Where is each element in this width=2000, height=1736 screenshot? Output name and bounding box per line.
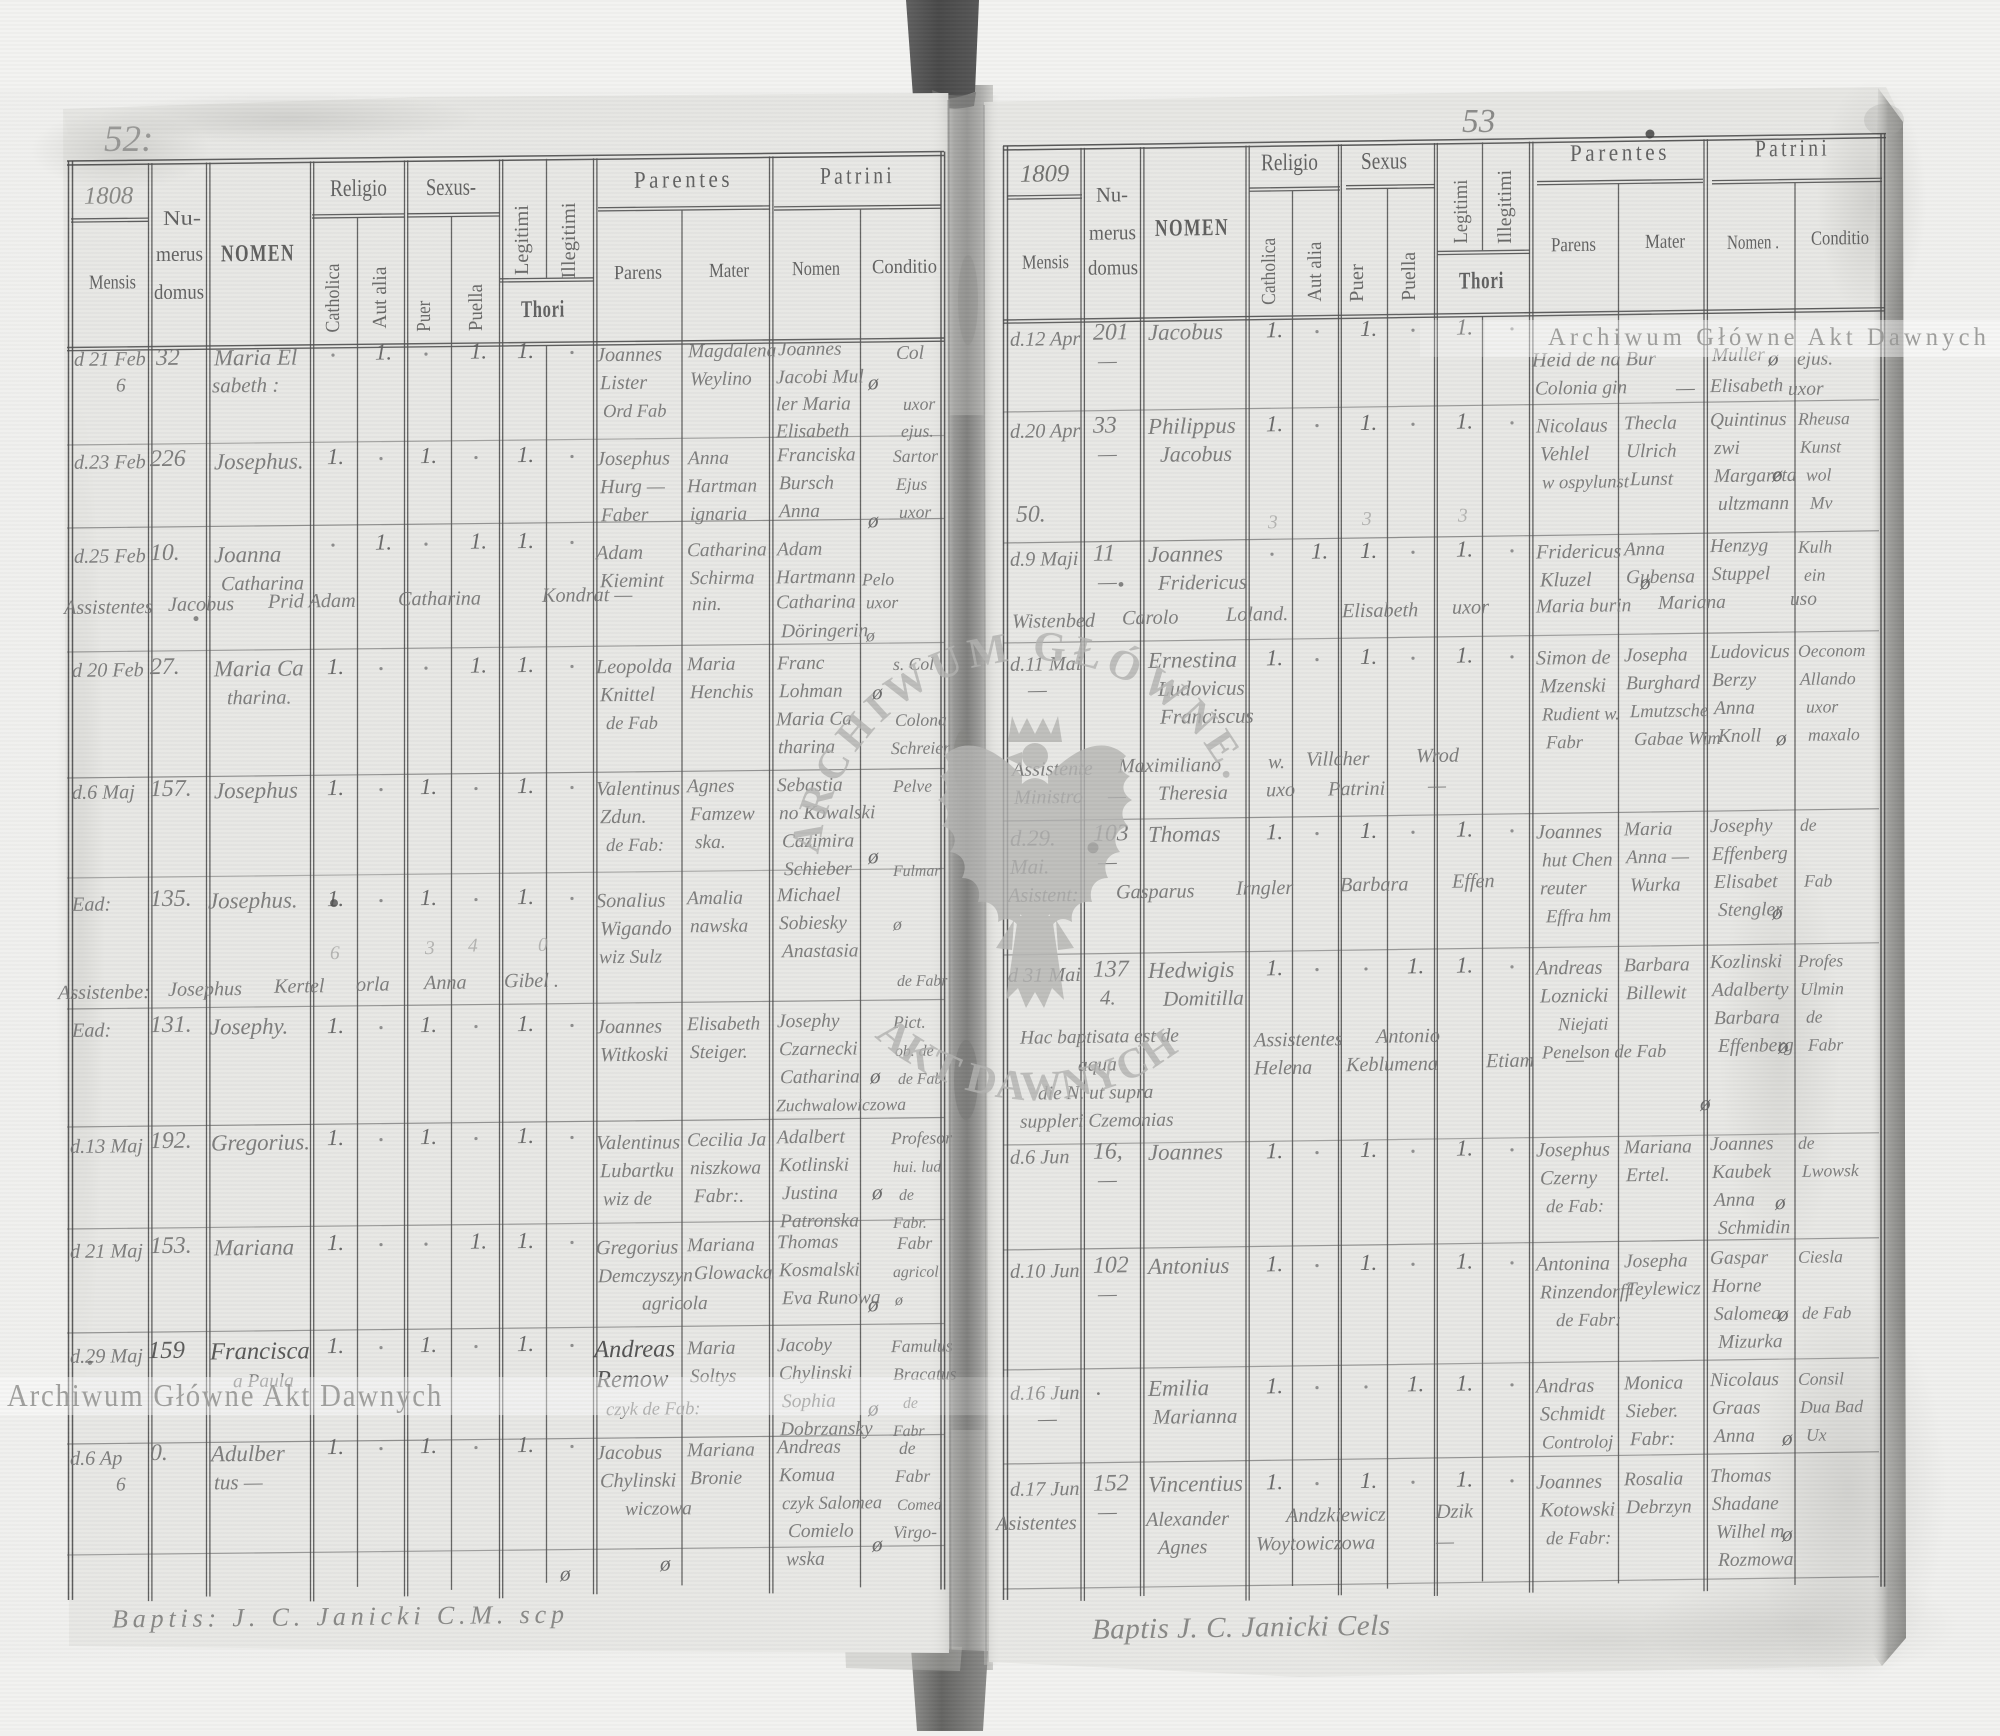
- svg-text:de: de: [899, 1438, 916, 1458]
- svg-text:Comed: Comed: [897, 1497, 942, 1514]
- svg-text:Archiwum Główne Akt Dawnych: Archiwum Główne Akt Dawnych: [1548, 324, 1990, 351]
- svg-text:Patronska: Patronska: [779, 1210, 859, 1232]
- svg-text:1.: 1.: [1311, 538, 1328, 563]
- svg-text:ler Maria: ler Maria: [776, 394, 851, 416]
- svg-text:4.: 4.: [1100, 985, 1116, 1009]
- svg-text:Shadane: Shadane: [1712, 1493, 1779, 1515]
- svg-text:uxor: uxor: [1452, 596, 1489, 619]
- svg-text:ø: ø: [1775, 726, 1787, 750]
- svg-text:ø: ø: [1771, 900, 1783, 924]
- svg-text:Justina: Justina: [782, 1183, 838, 1205]
- svg-text:Barbara: Barbara: [1714, 1007, 1780, 1029]
- svg-text:Simon de: Simon de: [1536, 647, 1611, 670]
- svg-text:Patrini: Patrini: [1327, 778, 1385, 801]
- svg-text:Effra hm: Effra hm: [1545, 907, 1611, 928]
- svg-text:1.: 1.: [517, 773, 534, 798]
- svg-text:Sobiesky: Sobiesky: [779, 913, 847, 935]
- svg-text:Maria: Maria: [1623, 819, 1672, 841]
- svg-text:6: 6: [116, 375, 126, 396]
- svg-text:domus: domus: [154, 280, 204, 305]
- svg-text:d 20 Feb: d 20 Feb: [72, 659, 144, 682]
- svg-text:ø: ø: [871, 1532, 883, 1556]
- svg-text:Lohman: Lohman: [778, 681, 843, 703]
- svg-text:Parens: Parens: [1551, 234, 1596, 257]
- svg-text:Anna: Anna: [686, 448, 729, 469]
- svg-text:ø: ø: [867, 844, 879, 868]
- svg-text:Nicolaus: Nicolaus: [1709, 1369, 1779, 1391]
- svg-text:hui. lud: hui. lud: [893, 1159, 941, 1177]
- svg-text:Ux: Ux: [1806, 1424, 1827, 1444]
- svg-text:Kulh: Kulh: [1797, 536, 1832, 556]
- svg-text:Lwowsk: Lwowsk: [1801, 1160, 1860, 1181]
- svg-text:16,: 16,: [1093, 1138, 1123, 1164]
- svg-text:Maria: Maria: [686, 1338, 735, 1360]
- svg-text:Catharina: Catharina: [776, 591, 856, 613]
- svg-text:Kaubek: Kaubek: [1711, 1161, 1772, 1183]
- svg-text:Religio: Religio: [330, 176, 387, 203]
- svg-text:Antonius: Antonius: [1146, 1253, 1229, 1279]
- svg-text:Fabr: Fabr: [1545, 733, 1584, 754]
- svg-text:ø: ø: [867, 370, 879, 394]
- svg-text:ø: ø: [1781, 1426, 1793, 1450]
- svg-text:Fulmar: Fulmar: [892, 863, 941, 881]
- svg-text:czyk Salomea: czyk Salomea: [782, 1493, 882, 1514]
- svg-text:Effenberg: Effenberg: [1711, 843, 1788, 865]
- svg-text:tharina.: tharina.: [227, 687, 291, 710]
- svg-text:Joannes: Joannes: [1148, 1139, 1223, 1165]
- svg-text:137: 137: [1093, 956, 1130, 983]
- svg-text:Patrini: Patrini: [820, 163, 895, 190]
- svg-text:Wrod: Wrod: [1416, 745, 1460, 768]
- svg-text:Ciesla: Ciesla: [1798, 1246, 1843, 1267]
- svg-text:ska.: ska.: [695, 832, 726, 853]
- svg-text:4: 4: [468, 936, 478, 957]
- svg-text:wska: wska: [786, 1549, 825, 1570]
- svg-text:Michael: Michael: [776, 885, 841, 907]
- svg-text:Hartman: Hartman: [686, 476, 757, 498]
- svg-text:Joannes: Joannes: [596, 344, 662, 367]
- svg-text:Nu-: Nu-: [163, 206, 201, 230]
- svg-text:153.: 153.: [150, 1233, 192, 1259]
- svg-text:Josephus.: Josephus.: [208, 888, 298, 914]
- svg-text:Famulus: Famulus: [890, 1335, 953, 1356]
- svg-text:Villcher: Villcher: [1306, 748, 1370, 771]
- svg-text:—: —: [1097, 348, 1117, 372]
- svg-text:Conditio: Conditio: [1811, 227, 1869, 250]
- svg-text:Salomea: Salomea: [1714, 1303, 1781, 1325]
- svg-text:Colonia gin: Colonia gin: [1535, 377, 1627, 399]
- svg-text:Sonalius: Sonalius: [596, 890, 666, 913]
- svg-text:Lunst: Lunst: [1629, 469, 1674, 491]
- svg-text:de Fabr:: de Fabr:: [1556, 1310, 1621, 1331]
- svg-text:Archiwum Główne Akt Dawnych: Archiwum Główne Akt Dawnych: [7, 1377, 443, 1413]
- svg-text:Effen: Effen: [1451, 870, 1495, 893]
- svg-text:Wurka: Wurka: [1630, 875, 1681, 897]
- svg-text:Ulrich: Ulrich: [1626, 441, 1677, 463]
- svg-text:wol: wol: [1806, 464, 1832, 484]
- svg-text:Penelson de Fab: Penelson de Fab: [1541, 1042, 1666, 1064]
- svg-text:Fabr: Fabr: [1807, 1034, 1843, 1055]
- svg-text:—: —: [1097, 1167, 1117, 1191]
- svg-text:1.: 1.: [470, 1228, 487, 1253]
- svg-text:Amalia: Amalia: [685, 888, 743, 910]
- svg-text:1.: 1.: [327, 1434, 344, 1459]
- svg-text:—: —: [1435, 1531, 1455, 1553]
- svg-text:1.: 1.: [1266, 411, 1283, 436]
- svg-text:Fridericus: Fridericus: [1535, 540, 1621, 563]
- svg-text:Burghard: Burghard: [1626, 672, 1700, 694]
- svg-text:131.: 131.: [150, 1012, 192, 1038]
- svg-text:merus: merus: [156, 242, 203, 267]
- svg-text:—: —: [1675, 375, 1695, 399]
- svg-text:Dua Bad: Dua Bad: [1799, 1396, 1863, 1417]
- svg-text:Profes: Profes: [1797, 950, 1843, 971]
- svg-text:Joannes: Joannes: [778, 339, 842, 361]
- svg-text:uxor: uxor: [866, 592, 898, 612]
- svg-text:32: 32: [155, 345, 180, 371]
- svg-text:Comielo: Comielo: [788, 1520, 854, 1542]
- svg-text:Mensis: Mensis: [89, 271, 136, 294]
- svg-text:d 21 Feb: d 21 Feb: [74, 348, 146, 371]
- svg-text:Kosmalski: Kosmalski: [778, 1259, 860, 1281]
- svg-text:27.: 27.: [150, 654, 180, 680]
- svg-text:152: 152: [1093, 1470, 1129, 1496]
- svg-text:Komua: Komua: [778, 1465, 835, 1487]
- svg-text:Jacobus: Jacobus: [1148, 319, 1223, 345]
- svg-text:Josephus: Josephus: [1536, 1139, 1610, 1162]
- svg-text:157.: 157.: [150, 776, 192, 802]
- svg-text:Debrzyn: Debrzyn: [1625, 1496, 1692, 1518]
- svg-text:niszkowa: niszkowa: [690, 1157, 761, 1179]
- svg-text:uxo: uxo: [1266, 779, 1295, 801]
- svg-text:Nomen: Nomen: [792, 258, 840, 281]
- svg-text:Elisabeth: Elisabeth: [1341, 599, 1418, 622]
- svg-text:Ludovicus: Ludovicus: [1709, 641, 1790, 663]
- svg-text:Francisca: Francisca: [209, 1337, 310, 1365]
- svg-text:Prid Adam: Prid Adam: [267, 590, 356, 613]
- svg-text:Gaspar: Gaspar: [1710, 1247, 1769, 1269]
- svg-text:1.: 1.: [517, 528, 534, 553]
- svg-text:1.: 1.: [1266, 1251, 1283, 1276]
- svg-text:orla: orla: [356, 974, 390, 996]
- svg-text:Cecilia Ja: Cecilia Ja: [687, 1129, 766, 1151]
- svg-text:Rosalia: Rosalia: [1623, 1469, 1683, 1491]
- svg-text:ejus.: ejus.: [901, 421, 934, 441]
- svg-text:Thecla: Thecla: [1624, 413, 1677, 435]
- svg-text:uso: uso: [1790, 589, 1817, 610]
- svg-text:6: 6: [330, 943, 340, 964]
- svg-text:—: —: [1097, 1499, 1117, 1523]
- svg-text:ø: ø: [1774, 1190, 1786, 1214]
- svg-text:de Fab: de Fab: [606, 714, 658, 735]
- svg-text:Adam: Adam: [775, 539, 822, 561]
- svg-text:Ulmin: Ulmin: [1800, 978, 1844, 999]
- svg-text:1.: 1.: [327, 1230, 344, 1255]
- svg-text:Catharina: Catharina: [687, 539, 767, 561]
- svg-text:ø: ø: [892, 914, 903, 934]
- svg-text:Patrini: Patrini: [1755, 135, 1830, 162]
- svg-text:1.: 1.: [1456, 408, 1473, 433]
- svg-text:1.: 1.: [1456, 642, 1473, 667]
- svg-text:w.: w.: [1268, 751, 1285, 773]
- svg-text:1.: 1.: [327, 1013, 344, 1038]
- svg-text:Anna: Anna: [1712, 1426, 1755, 1448]
- svg-text:d.6 Maj: d.6 Maj: [72, 781, 135, 804]
- svg-text:53: 53: [1462, 103, 1495, 140]
- svg-text:1.: 1.: [1456, 1135, 1473, 1160]
- svg-text:1.: 1.: [420, 1433, 437, 1458]
- svg-text:Elisabeth: Elisabeth: [775, 421, 849, 443]
- svg-text:Valentinus: Valentinus: [596, 1131, 680, 1154]
- svg-text:ein: ein: [1804, 565, 1826, 585]
- svg-text:Assistenbe:: Assistenbe:: [56, 981, 150, 1004]
- svg-text:Puella: Puella: [1398, 252, 1420, 301]
- svg-text:Jacobus: Jacobus: [168, 593, 234, 616]
- svg-text:d.17 Jun: d.17 Jun: [1010, 1478, 1080, 1501]
- svg-text:Gabae Wim: Gabae Wim: [1634, 729, 1721, 750]
- svg-text:1.: 1.: [1456, 816, 1473, 841]
- svg-text:Wigando: Wigando: [600, 917, 672, 940]
- svg-text:Vehlel: Vehlel: [1540, 443, 1590, 466]
- svg-text:—: —: [1097, 569, 1117, 593]
- svg-text:ø: ø: [1639, 570, 1651, 594]
- svg-text:tus —: tus —: [214, 1470, 263, 1495]
- svg-text:Quintinus: Quintinus: [1710, 409, 1786, 431]
- svg-text:Anna —: Anna —: [1624, 846, 1690, 868]
- svg-text:1.: 1.: [517, 1432, 534, 1457]
- svg-text:Baptis J. C. Janicki Cel: Baptis J. C. Janicki Cels: [1092, 1610, 1392, 1646]
- svg-text:Aut alia: Aut alia: [369, 266, 391, 328]
- svg-text:uxor: uxor: [1806, 696, 1838, 716]
- svg-text:Alexander: Alexander: [1144, 1508, 1229, 1531]
- svg-text:ø: ø: [1699, 1091, 1711, 1115]
- svg-text:Schirma: Schirma: [690, 568, 755, 590]
- svg-text:Aut alia: Aut alia: [1304, 241, 1326, 301]
- svg-text:Kozlinski: Kozlinski: [1709, 951, 1782, 973]
- svg-text:1.: 1.: [470, 528, 487, 553]
- svg-text:Agnes: Agnes: [1156, 1536, 1207, 1559]
- svg-text:1.: 1.: [420, 1124, 437, 1149]
- svg-text:Teylewicz: Teylewicz: [1626, 1278, 1701, 1300]
- svg-text:Anna: Anna: [1622, 539, 1665, 561]
- svg-text:1.: 1.: [1360, 644, 1377, 669]
- svg-text:Loland.: Loland.: [1225, 603, 1288, 626]
- svg-text:de Fabr:: de Fabr:: [1546, 1529, 1611, 1550]
- svg-text:Ord Fab: Ord Fab: [603, 402, 667, 423]
- svg-text:Puer: Puer: [413, 300, 435, 332]
- svg-text:ø: ø: [867, 1292, 879, 1316]
- svg-text:1.: 1.: [1456, 1248, 1473, 1273]
- svg-text:Eva Runowa: Eva Runowa: [781, 1287, 881, 1309]
- svg-text:Parentes: Parentes: [1570, 140, 1670, 167]
- svg-text:d.13 Maj: d.13 Maj: [70, 1135, 143, 1158]
- svg-text:1.: 1.: [517, 338, 534, 363]
- svg-text:Rudient w.: Rudient w.: [1541, 704, 1620, 725]
- svg-text:Vincentius: Vincentius: [1148, 1471, 1243, 1497]
- svg-text:1.: 1.: [517, 1011, 534, 1036]
- svg-text:3: 3: [1361, 509, 1372, 530]
- svg-text:de Fab:: de Fab:: [1546, 1197, 1604, 1218]
- svg-text:uxor: uxor: [903, 394, 935, 414]
- svg-text:Parens: Parens: [614, 262, 662, 285]
- svg-text:de Fabr: de Fabr: [897, 972, 948, 990]
- svg-text:1.: 1.: [420, 443, 437, 468]
- svg-text:Mensis: Mensis: [1022, 251, 1069, 274]
- svg-text:Schmidin: Schmidin: [1718, 1217, 1790, 1239]
- svg-text:1.: 1.: [1456, 952, 1473, 977]
- svg-text:Fabr:.: Fabr:.: [693, 1186, 744, 1208]
- svg-text:Gibel .: Gibel .: [504, 970, 559, 993]
- svg-text:Joannes: Joannes: [1148, 541, 1223, 567]
- svg-text:Kunst: Kunst: [1799, 436, 1842, 457]
- svg-text:Margareta: Margareta: [1713, 465, 1797, 487]
- svg-text:1.: 1.: [517, 1123, 534, 1148]
- svg-text:11: 11: [1093, 540, 1115, 566]
- svg-text:Chylinski: Chylinski: [600, 1469, 676, 1492]
- svg-text:Pelo: Pelo: [861, 569, 894, 589]
- svg-text:Maria El: Maria El: [213, 345, 297, 371]
- svg-text:wiz de: wiz de: [603, 1189, 652, 1211]
- svg-text:1.: 1.: [1456, 1370, 1473, 1395]
- svg-text:1.: 1.: [1266, 317, 1283, 342]
- svg-text:1.: 1.: [470, 338, 487, 363]
- svg-text:Philippus: Philippus: [1147, 413, 1236, 439]
- svg-text:Rheusa: Rheusa: [1797, 408, 1850, 429]
- svg-text:Col: Col: [896, 343, 924, 364]
- svg-text:d.10 Jun: d.10 Jun: [1010, 1260, 1080, 1283]
- svg-text:Thomas: Thomas: [1710, 1465, 1771, 1487]
- svg-text:Consil: Consil: [1798, 1368, 1844, 1389]
- svg-text:Antonina: Antonina: [1534, 1253, 1610, 1276]
- svg-text:Czerny: Czerny: [1540, 1167, 1597, 1190]
- svg-text:nin.: nin.: [692, 594, 722, 615]
- svg-text:Andreas: Andreas: [775, 1437, 841, 1459]
- svg-text:Maria Ca: Maria Ca: [213, 655, 304, 681]
- svg-text:de: de: [1806, 1007, 1823, 1027]
- svg-text:Sieber.: Sieber.: [1626, 1401, 1678, 1423]
- svg-text:d.29 Maj: d.29 Maj: [70, 1345, 143, 1368]
- svg-text:192.: 192.: [150, 1128, 192, 1154]
- svg-text:Josephus: Josephus: [214, 778, 298, 804]
- svg-text:Keblumena: Keblumena: [1345, 1053, 1438, 1076]
- svg-text:d.23 Feb: d.23 Feb: [74, 451, 146, 474]
- svg-text:1.: 1.: [420, 1332, 437, 1357]
- svg-text:Carolo: Carolo: [1122, 607, 1178, 630]
- svg-text:Maria burin: Maria burin: [1535, 595, 1631, 617]
- svg-text:Andzkiewicz: Andzkiewicz: [1284, 1504, 1386, 1527]
- svg-text:ø: ø: [869, 1064, 881, 1088]
- svg-text:d.25 Feb: d.25 Feb: [74, 545, 146, 568]
- svg-text:Rinzendorff: Rinzendorff: [1539, 1281, 1633, 1303]
- svg-text:ø: ø: [1777, 1302, 1789, 1326]
- svg-text:—: —: [1027, 677, 1047, 701]
- svg-text:Rozmowa: Rozmowa: [1717, 1549, 1793, 1571]
- svg-text:Fabr.: Fabr.: [892, 1215, 927, 1232]
- svg-text:Billewit: Billewit: [1626, 982, 1687, 1004]
- svg-text:Elisabeth: Elisabeth: [686, 1013, 760, 1035]
- svg-text:Antonio: Antonio: [1374, 1025, 1440, 1048]
- svg-text:Andras: Andras: [1534, 1375, 1594, 1398]
- svg-text:Ead:: Ead:: [71, 894, 111, 916]
- svg-text:Puella: Puella: [465, 284, 487, 331]
- svg-text:Schmidt: Schmidt: [1540, 1403, 1606, 1426]
- svg-text:Anna: Anna: [1712, 1190, 1755, 1212]
- svg-text:Dzik: Dzik: [1435, 1500, 1474, 1523]
- svg-text:6: 6: [116, 1474, 126, 1495]
- svg-text:Knittel: Knittel: [599, 684, 655, 707]
- svg-text:Stuppel: Stuppel: [1712, 563, 1770, 585]
- svg-text:1.: 1.: [517, 1331, 534, 1356]
- svg-text:d.9 Maji: d.9 Maji: [1010, 548, 1078, 571]
- svg-text:w ospylunst: w ospylunst: [1542, 472, 1630, 493]
- svg-text:1.: 1.: [1407, 1371, 1424, 1396]
- svg-text:1.: 1.: [420, 885, 437, 910]
- svg-text:agricola: agricola: [642, 1293, 708, 1315]
- svg-text:3: 3: [1457, 506, 1468, 527]
- svg-text:suppleri Czemonias: suppleri Czemonias: [1020, 1110, 1174, 1133]
- svg-text:Catharina: Catharina: [398, 588, 481, 611]
- svg-text:NOMEN: NOMEN: [221, 241, 295, 268]
- svg-text:Joannes: Joannes: [1536, 1471, 1602, 1494]
- svg-text:Gasparus: Gasparus: [1116, 880, 1195, 903]
- svg-text:zwi: zwi: [1713, 438, 1740, 459]
- svg-text:1.: 1.: [327, 1333, 344, 1358]
- svg-text:Horne: Horne: [1711, 1275, 1762, 1297]
- svg-text:uxor: uxor: [899, 502, 931, 522]
- svg-text:Bronie: Bronie: [690, 1468, 742, 1490]
- svg-text:Glowacka: Glowacka: [694, 1262, 773, 1284]
- svg-text:Ead:: Ead:: [71, 1020, 111, 1042]
- svg-text:Mariana: Mariana: [1623, 1136, 1692, 1158]
- svg-text:1.: 1.: [1456, 1466, 1473, 1491]
- svg-text:Bursch: Bursch: [779, 473, 834, 495]
- svg-text:ultzmann: ultzmann: [1718, 493, 1789, 515]
- svg-text:Berzy: Berzy: [1712, 669, 1757, 691]
- svg-text:ø: ø: [1771, 462, 1783, 486]
- svg-text:—: —: [1097, 1281, 1117, 1305]
- svg-text:Franc: Franc: [776, 653, 825, 675]
- svg-text:Steiger.: Steiger.: [690, 1042, 748, 1064]
- svg-text:Gubensa: Gubensa: [1626, 566, 1695, 588]
- svg-text:merus: merus: [1089, 220, 1136, 245]
- svg-text:Helena: Helena: [1253, 1057, 1312, 1080]
- svg-text:Religio: Religio: [1261, 150, 1318, 177]
- svg-text:Sexus-: Sexus-: [426, 175, 476, 202]
- svg-text:de: de: [1798, 1133, 1815, 1153]
- svg-text:1.: 1.: [420, 774, 437, 799]
- svg-text:Joanna: Joanna: [214, 542, 281, 568]
- svg-text:Mizurka: Mizurka: [1717, 1331, 1783, 1353]
- svg-text:Sartor: Sartor: [893, 446, 938, 466]
- svg-text:Andreas: Andreas: [1534, 957, 1603, 980]
- svg-text:Anna: Anna: [1712, 698, 1755, 720]
- svg-text:Thomas: Thomas: [1148, 821, 1221, 847]
- svg-text:Josephy: Josephy: [1710, 815, 1773, 837]
- svg-text:Josephus: Josephus: [168, 978, 242, 1001]
- svg-text:Kondrat —: Kondrat —: [541, 584, 633, 607]
- svg-text:Czarnecki: Czarnecki: [779, 1038, 858, 1060]
- svg-text:1.: 1.: [420, 1012, 437, 1037]
- svg-text:1.: 1.: [517, 442, 534, 467]
- svg-text:Kluzel: Kluzel: [1539, 569, 1592, 592]
- svg-text:Josepha: Josepha: [1624, 644, 1688, 666]
- svg-text:Valentinus: Valentinus: [596, 777, 680, 800]
- svg-text:Hurg —: Hurg —: [599, 476, 666, 499]
- svg-text:1.: 1.: [327, 444, 344, 469]
- svg-text:ø: ø: [1777, 1034, 1789, 1058]
- svg-text:Josepha: Josepha: [1624, 1250, 1688, 1272]
- svg-text:Anna: Anna: [777, 501, 820, 522]
